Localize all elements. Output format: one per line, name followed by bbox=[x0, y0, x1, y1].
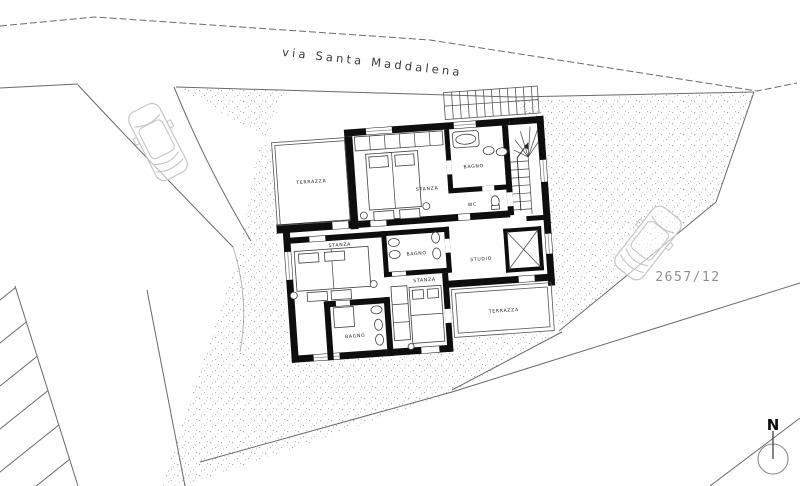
house-plan: TERRAZZA bbox=[268, 86, 559, 364]
sink bbox=[496, 147, 508, 156]
bedroom-3: STANZA bbox=[390, 276, 445, 350]
hatch-area bbox=[0, 212, 110, 486]
elevator bbox=[503, 226, 544, 273]
road: via Santa Maddalena bbox=[0, 17, 797, 97]
shower bbox=[333, 306, 354, 327]
site-plan-canvas: via Santa Maddalena 2657/ bbox=[0, 0, 800, 486]
site-plan-drawing: via Santa Maddalena 2657/ bbox=[0, 0, 800, 486]
car-left bbox=[122, 99, 194, 186]
road-centerline bbox=[0, 17, 797, 91]
street-name-label: via Santa Maddalena bbox=[281, 45, 463, 79]
room-label-wc: WC bbox=[468, 202, 478, 209]
parcel-number-label: 2657/12 bbox=[655, 270, 720, 285]
sink bbox=[483, 146, 495, 155]
north-label: N bbox=[767, 416, 780, 434]
road-curb-left bbox=[0, 84, 78, 88]
north-arrow: N bbox=[758, 416, 788, 474]
